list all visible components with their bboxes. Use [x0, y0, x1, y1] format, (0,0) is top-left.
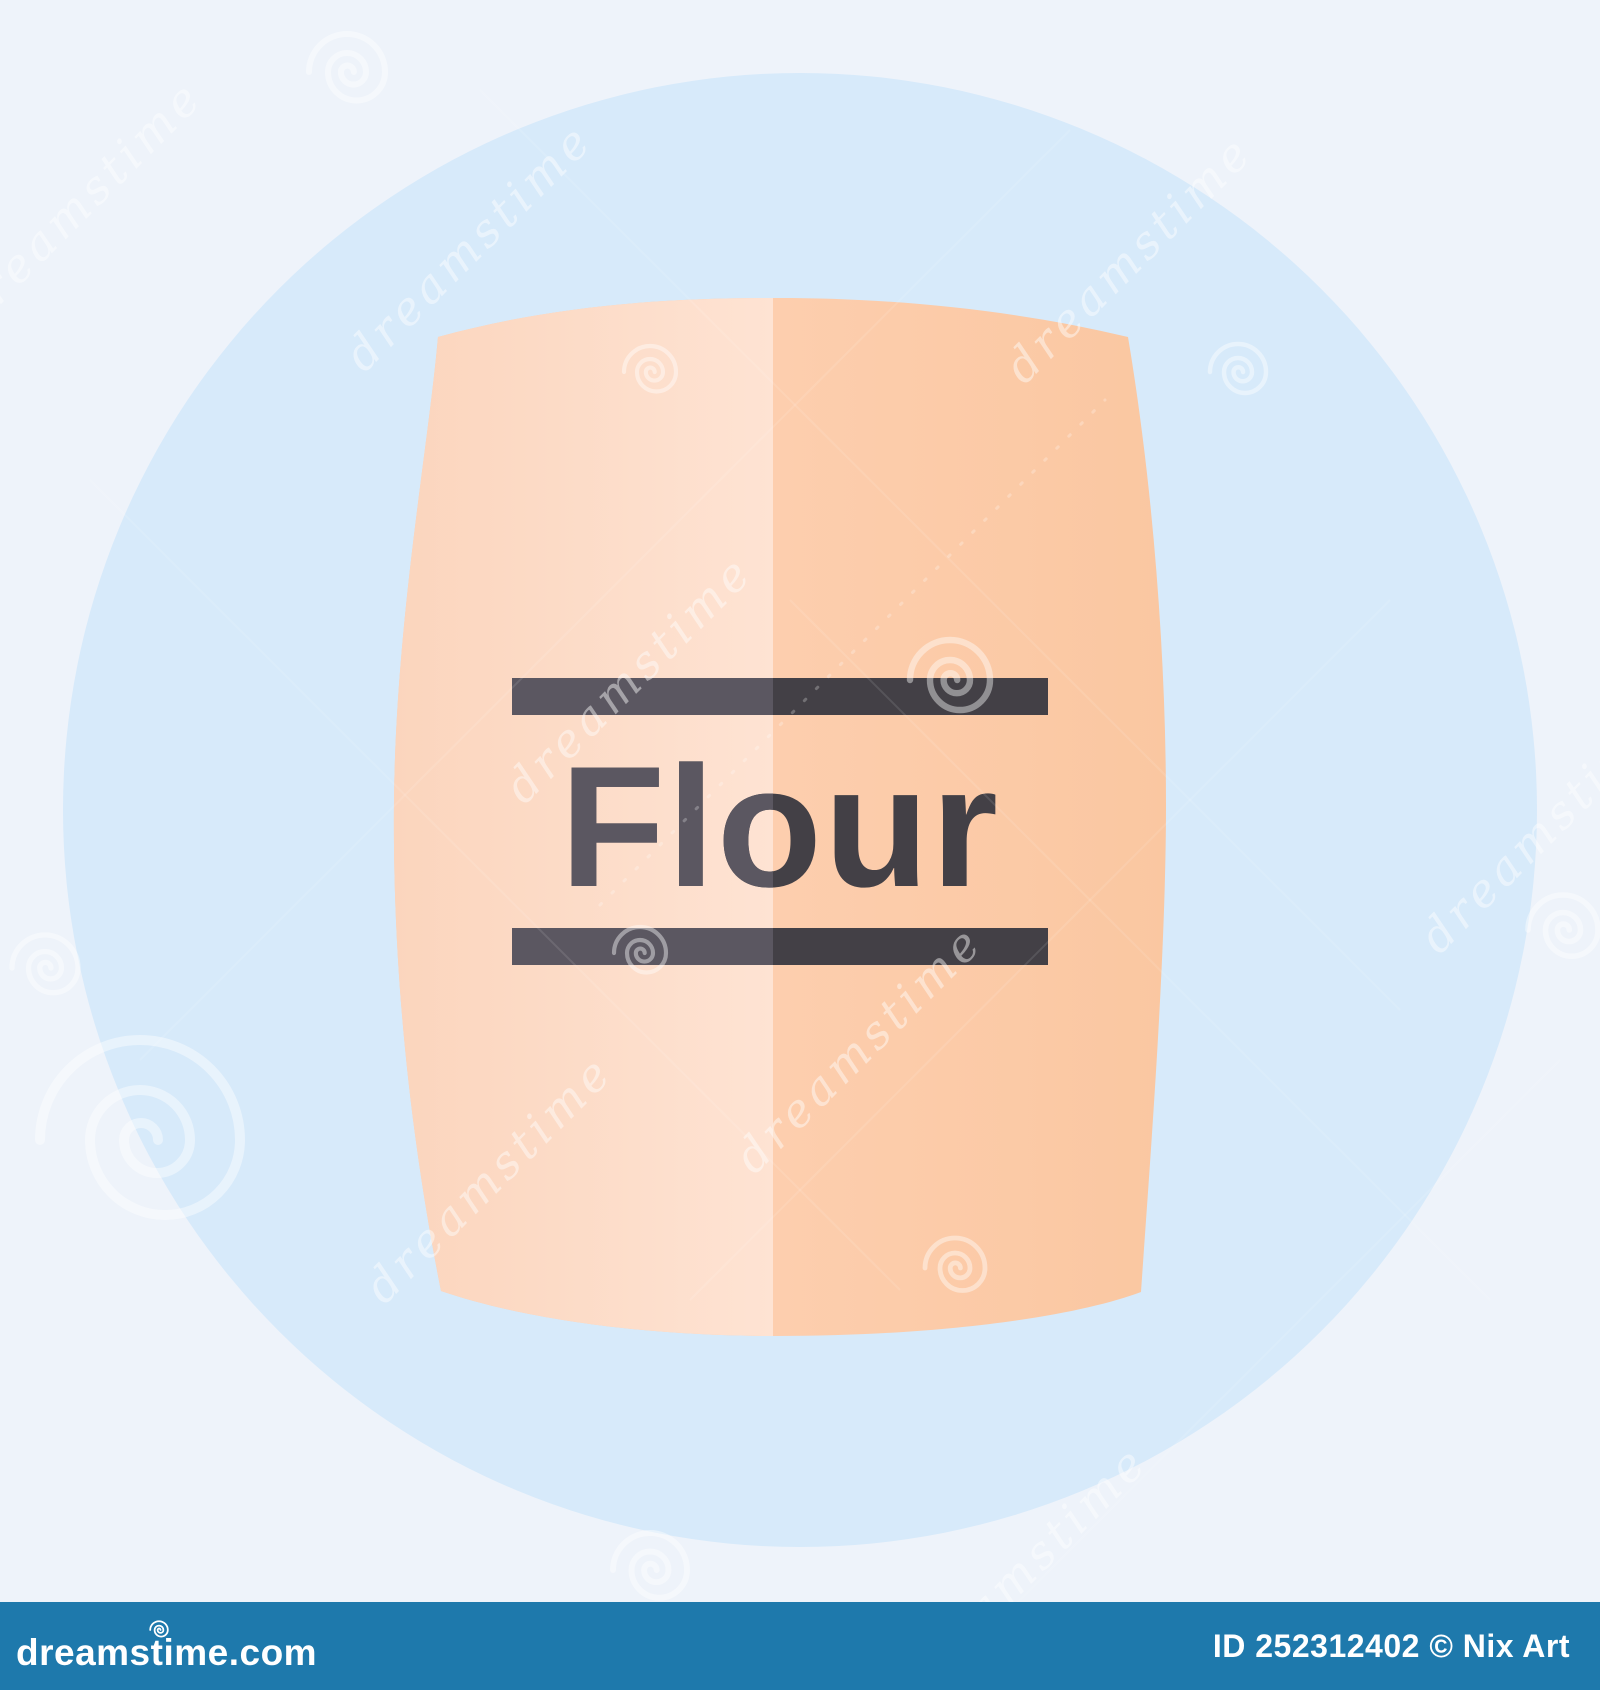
- logo-text-post: ime.com: [163, 1634, 317, 1671]
- watermark-spiral-icon: [1528, 895, 1598, 956]
- watermark-spiral-icon: [613, 1533, 687, 1598]
- credit-text: ID 252312402 © Nix Art: [1213, 1628, 1570, 1665]
- watermark-spiral-icon: [309, 34, 385, 101]
- logo-text-pre: dreams: [16, 1634, 151, 1671]
- dreamstime-logo: dreamstime.com: [16, 1634, 317, 1671]
- dreamstime-spiral-icon: [148, 1619, 170, 1641]
- watermark-spiral-icon: [12, 935, 78, 993]
- watermark-footer-bar: dreamstime.com ID 252312402 © Nix Art: [0, 1602, 1600, 1690]
- illustration-canvas: Flour Flour dreamstimedreamstimedreamsti…: [0, 0, 1600, 1690]
- watermark-brand-text: dreamstime: [0, 69, 214, 339]
